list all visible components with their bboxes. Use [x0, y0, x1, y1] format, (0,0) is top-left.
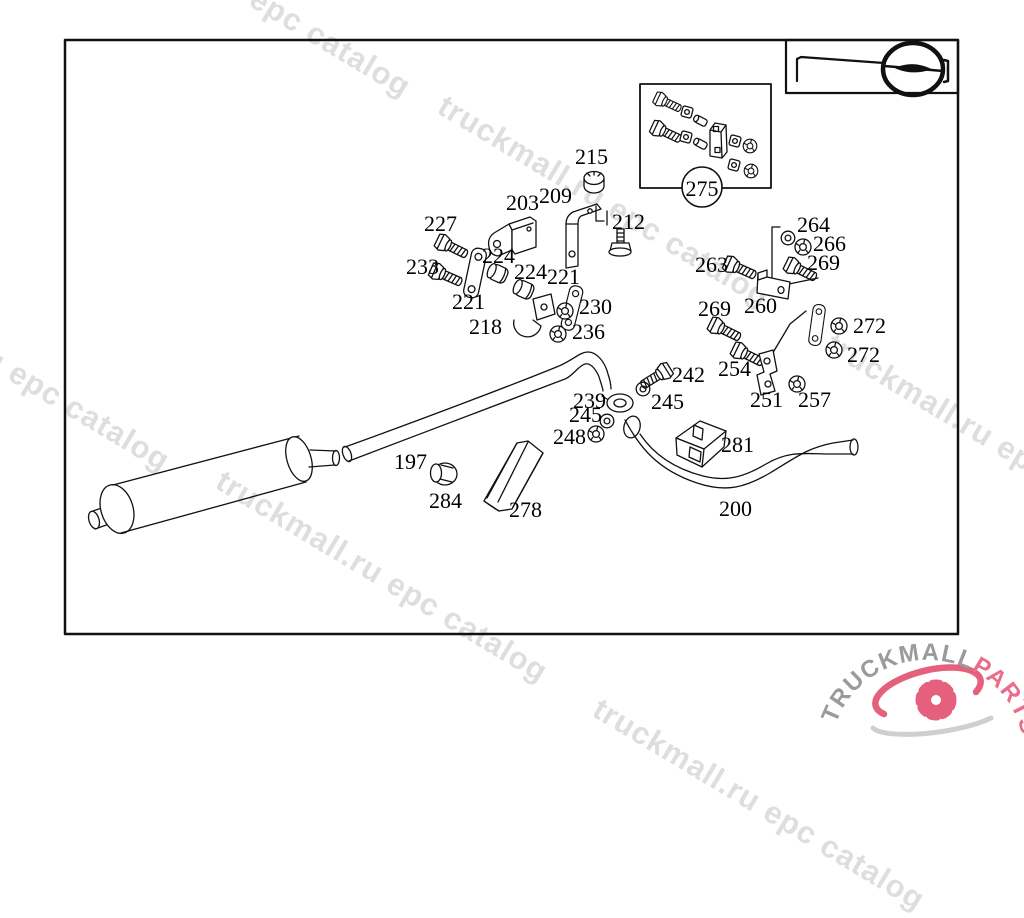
- square-nut-part: [681, 106, 694, 119]
- heat-shield-281: [676, 421, 726, 467]
- diagram-canvas: TRUCKMALLPARTS: [0, 0, 1024, 750]
- nut-230: [557, 303, 573, 319]
- part-label-245: 245: [651, 391, 684, 413]
- square-nut-part: [680, 131, 693, 144]
- part-label-221: 221: [547, 266, 580, 288]
- logo-swoosh-gray: [873, 718, 991, 734]
- part-label-224: 224: [514, 261, 547, 283]
- washer-245: [600, 414, 614, 428]
- part-label-227: 227: [424, 213, 457, 235]
- nut-272: [826, 342, 842, 358]
- part-label-263: 263: [695, 254, 728, 276]
- part-label-245: 245: [569, 404, 602, 426]
- part-label-272: 272: [853, 315, 886, 337]
- callout-275-label: 275: [682, 178, 722, 200]
- part-label-215: 215: [575, 146, 608, 168]
- part-label-230: 230: [579, 296, 612, 318]
- washer-264: [781, 231, 795, 245]
- washer-245: [636, 382, 650, 396]
- epc-diagram-page: { "watermark": { "text": "truckmall.ru e…: [0, 0, 1024, 750]
- nut-248: [588, 426, 604, 442]
- square-nut-part: [728, 159, 741, 172]
- muffler-silencer: [87, 433, 340, 537]
- castle-nut-215: [584, 172, 604, 194]
- part-label-251: 251: [750, 389, 783, 411]
- part-label-278: 278: [509, 499, 542, 521]
- pipe-clamp-218: [514, 294, 555, 337]
- part-label-254: 254: [718, 358, 751, 380]
- nut-part: [744, 164, 758, 178]
- nut-272: [831, 318, 847, 334]
- part-label-209: 209: [539, 185, 572, 207]
- gear-icon: [920, 684, 952, 716]
- part-label-224: 224: [482, 245, 515, 267]
- driving-direction-indicator: [786, 40, 958, 95]
- part-label-197: 197: [394, 451, 427, 473]
- part-label-272: 272: [847, 344, 880, 366]
- flange-gasket-239: [602, 394, 633, 412]
- part-label-218: 218: [469, 316, 502, 338]
- part-label-269: 269: [698, 298, 731, 320]
- part-label-200: 200: [719, 498, 752, 520]
- bracket-block-part: [710, 123, 727, 158]
- part-label-257: 257: [798, 389, 831, 411]
- clamp-284: [431, 463, 458, 485]
- part-label-236: 236: [572, 321, 605, 343]
- part-label-248: 248: [553, 426, 586, 448]
- bolt-part: [649, 119, 684, 147]
- part-label-221: 221: [452, 291, 485, 313]
- bolt-part: [652, 90, 684, 115]
- part-label-212: 212: [612, 211, 645, 233]
- truckmall-logo: TRUCKMALLPARTS: [816, 639, 1024, 739]
- part-label-281: 281: [721, 434, 754, 456]
- rubber-hanger-strap: [808, 304, 826, 346]
- part-label-203: 203: [506, 192, 539, 214]
- square-nut-part: [729, 135, 742, 148]
- part-label-284: 284: [429, 490, 462, 512]
- part-label-269: 269: [807, 252, 840, 274]
- nut-236: [550, 326, 566, 342]
- part-label-260: 260: [744, 295, 777, 317]
- part-label-242: 242: [672, 364, 705, 386]
- steering-wheel-icon: [797, 43, 948, 95]
- part-label-233: 233: [406, 256, 439, 278]
- diagram-border: [65, 40, 958, 634]
- nut-part: [743, 139, 757, 153]
- spacer-part: [693, 114, 708, 127]
- spacer-part: [693, 137, 708, 150]
